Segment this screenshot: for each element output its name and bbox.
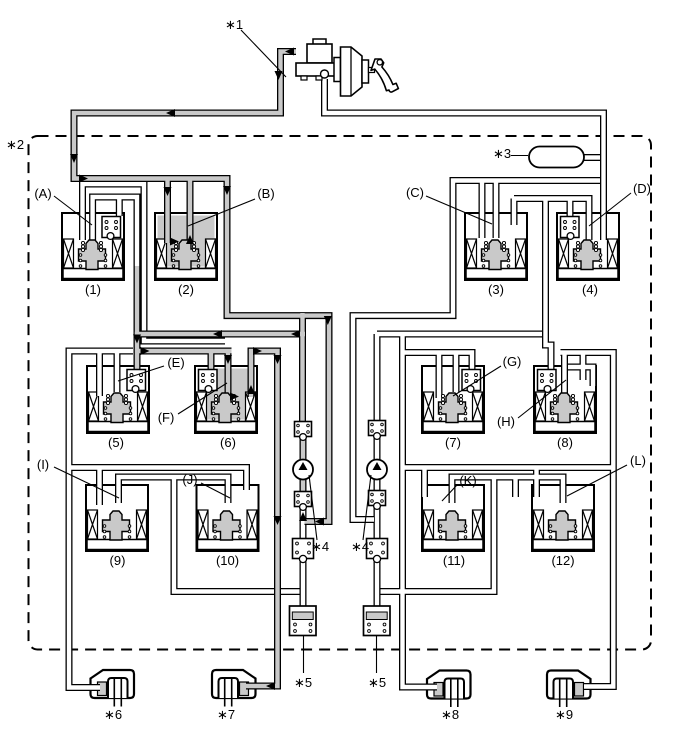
svg-text:(F): (F) xyxy=(158,410,175,425)
svg-text:(4): (4) xyxy=(582,282,598,297)
svg-text:(A): (A) xyxy=(34,186,51,201)
svg-text:(12): (12) xyxy=(551,553,574,568)
svg-text:∗4: ∗4 xyxy=(311,539,329,554)
svg-text:∗7: ∗7 xyxy=(217,707,235,722)
svg-text:(J): (J) xyxy=(182,472,197,487)
svg-text:(L): (L) xyxy=(630,453,646,468)
svg-text:(1): (1) xyxy=(85,282,101,297)
svg-text:(5): (5) xyxy=(108,435,124,450)
svg-text:∗8: ∗8 xyxy=(441,707,459,722)
svg-text:(2): (2) xyxy=(178,282,194,297)
svg-text:(11): (11) xyxy=(443,553,465,568)
svg-text:(8): (8) xyxy=(557,435,573,450)
svg-text:∗5: ∗5 xyxy=(368,675,386,690)
svg-text:(K): (K) xyxy=(459,473,476,488)
svg-text:(E): (E) xyxy=(167,355,184,370)
svg-text:∗5: ∗5 xyxy=(294,675,312,690)
svg-text:∗4: ∗4 xyxy=(351,539,369,554)
svg-text:(B): (B) xyxy=(257,186,274,201)
svg-text:(7): (7) xyxy=(445,435,461,450)
svg-text:(10): (10) xyxy=(216,553,239,568)
svg-text:(6): (6) xyxy=(220,435,236,450)
svg-text:∗9: ∗9 xyxy=(555,707,573,722)
svg-text:(I): (I) xyxy=(37,457,49,472)
svg-text:(D): (D) xyxy=(633,181,651,196)
svg-text:∗6: ∗6 xyxy=(104,707,122,722)
svg-text:∗3: ∗3 xyxy=(493,146,511,161)
svg-text:(H): (H) xyxy=(497,414,515,429)
svg-text:∗2: ∗2 xyxy=(6,137,24,152)
svg-text:(3): (3) xyxy=(488,282,504,297)
svg-text:(C): (C) xyxy=(406,185,424,200)
svg-text:∗1: ∗1 xyxy=(225,17,243,32)
svg-text:(G): (G) xyxy=(503,354,522,369)
svg-text:(9): (9) xyxy=(110,553,126,568)
